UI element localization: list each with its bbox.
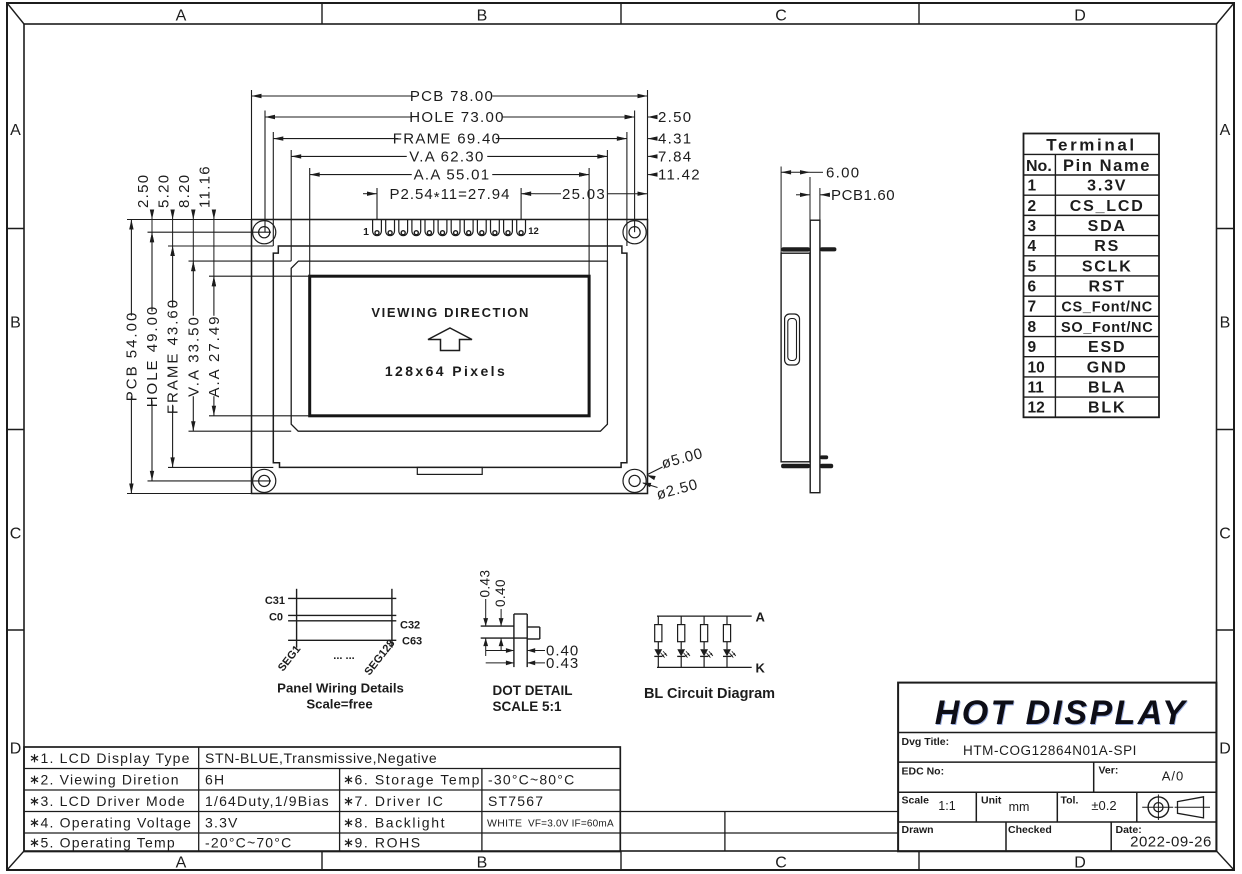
svg-text:B: B (10, 315, 21, 332)
svg-text:P2.54*11=27.94: P2.54*11=27.94 (390, 186, 511, 206)
svg-text:FRAME 43.60: FRAME 43.60 (165, 298, 182, 414)
svg-text:No.: No. (1026, 158, 1052, 175)
svg-text:Scale=free: Scale=free (306, 697, 372, 712)
svg-text:4: 4 (1028, 238, 1037, 255)
svg-text:7.84: 7.84 (658, 148, 692, 165)
svg-text:5.20: 5.20 (155, 174, 172, 208)
svg-text:RST: RST (1088, 279, 1125, 296)
svg-text:BL Circuit Diagram: BL Circuit Diagram (644, 686, 775, 702)
svg-text:-20°C~70°C: -20°C~70°C (205, 834, 292, 850)
svg-text:Terminal: Terminal (1046, 136, 1136, 155)
svg-text:K: K (756, 661, 766, 676)
svg-text:C: C (775, 855, 787, 872)
svg-text:VIEWING DIRECTION: VIEWING DIRECTION (371, 305, 530, 320)
svg-text:SCALE 5:1: SCALE 5:1 (493, 699, 563, 714)
svg-text:C: C (1219, 526, 1231, 543)
svg-text:A/0: A/0 (1162, 769, 1185, 784)
svg-text:C32: C32 (400, 620, 420, 632)
svg-text:HOLE 73.00: HOLE 73.00 (409, 109, 505, 126)
svg-text:CS_LCD: CS_LCD (1070, 198, 1145, 215)
svg-text:ST7567: ST7567 (488, 793, 544, 809)
svg-text:128x64 Pixels: 128x64 Pixels (385, 363, 507, 379)
svg-text:BLK: BLK (1088, 400, 1126, 417)
svg-text:PCB 78.00: PCB 78.00 (410, 88, 494, 105)
svg-text:V.A 33.50: V.A 33.50 (185, 315, 202, 397)
svg-text:D: D (1074, 855, 1086, 872)
svg-text:A: A (10, 122, 21, 139)
svg-text:1:1: 1:1 (938, 799, 955, 813)
svg-text:Ver:: Ver: (1099, 765, 1119, 777)
svg-text:B: B (477, 8, 488, 25)
svg-text:A: A (176, 8, 187, 25)
svg-text:C0: C0 (269, 612, 283, 624)
svg-text:Checked: Checked (1008, 824, 1052, 836)
svg-text:EDC No:: EDC No: (902, 766, 945, 778)
svg-text:PCB 54.00: PCB 54.00 (123, 311, 140, 402)
svg-text:8: 8 (1028, 319, 1037, 336)
svg-text:STN-BLUE,Transmissive,Negative: STN-BLUE,Transmissive,Negative (205, 750, 437, 766)
svg-text:9. ROHS: 9. ROHS (355, 834, 422, 850)
svg-text:1/64Duty,1/9Bias: 1/64Duty,1/9Bias (205, 793, 330, 809)
svg-text:3: 3 (1028, 218, 1037, 235)
svg-text:2. Viewing Diretion: 2. Viewing Diretion (41, 771, 180, 787)
svg-text:2022-09-26: 2022-09-26 (1130, 834, 1212, 851)
svg-text:ESD: ESD (1088, 339, 1126, 356)
svg-text:7: 7 (1028, 299, 1037, 316)
svg-text:SDA: SDA (1088, 218, 1127, 235)
svg-text:3.3V: 3.3V (205, 814, 239, 830)
svg-text:PCB1.60: PCB1.60 (831, 187, 895, 204)
svg-text:BLA: BLA (1088, 380, 1126, 397)
svg-text:A: A (176, 855, 187, 872)
svg-text:11: 11 (1028, 380, 1045, 397)
svg-text:C63: C63 (402, 636, 422, 648)
svg-text:C: C (10, 526, 22, 543)
svg-text:6H: 6H (205, 771, 225, 787)
svg-text:D: D (1074, 8, 1086, 25)
svg-text:7. Driver IC: 7. Driver IC (355, 793, 445, 809)
svg-text:A: A (756, 610, 766, 625)
svg-text:D: D (10, 741, 22, 758)
svg-text:2.50: 2.50 (658, 109, 692, 126)
svg-text:Scale: Scale (902, 795, 930, 807)
svg-text:4.31: 4.31 (658, 131, 692, 148)
svg-text:8.20: 8.20 (176, 174, 193, 208)
svg-text:±0.2: ±0.2 (1091, 798, 1116, 813)
svg-text:GND: GND (1087, 359, 1128, 376)
svg-text:1: 1 (363, 226, 369, 238)
svg-text:B: B (477, 855, 488, 872)
svg-text:Tol.: Tol. (1061, 795, 1079, 807)
svg-text:3. LCD Driver Mode: 3. LCD Driver Mode (41, 793, 186, 809)
svg-text:11.42: 11.42 (658, 167, 701, 184)
svg-text:Drawn: Drawn (902, 824, 934, 836)
svg-text:1. LCD Display Type: 1. LCD Display Type (41, 750, 191, 766)
svg-text:D: D (1219, 741, 1231, 758)
svg-text:Dvg Title:: Dvg Title: (902, 736, 950, 748)
svg-text:6: 6 (1028, 279, 1037, 296)
svg-text:C31: C31 (265, 595, 285, 607)
svg-text:B: B (1220, 315, 1231, 332)
svg-text:3.3V: 3.3V (1087, 178, 1127, 195)
svg-text:-30°C~80°C: -30°C~80°C (488, 771, 575, 787)
svg-text:A.A 27.49: A.A 27.49 (206, 314, 223, 397)
svg-text:2: 2 (1028, 198, 1037, 215)
svg-text:1: 1 (1028, 178, 1037, 195)
svg-text:2.50: 2.50 (135, 174, 152, 208)
svg-text:C: C (775, 8, 787, 25)
svg-text:HOLE 49.00: HOLE 49.00 (144, 305, 161, 408)
svg-text:... ...: ... ... (333, 650, 354, 662)
svg-text:0.43: 0.43 (546, 655, 579, 672)
svg-text:4. Operating Voltage: 4. Operating Voltage (41, 814, 193, 830)
svg-text:A.A 55.01: A.A 55.01 (414, 167, 491, 184)
svg-text:6.00: 6.00 (826, 164, 860, 181)
svg-text:12: 12 (1028, 400, 1045, 417)
svg-text:HTM-COG12864N01A-SPI: HTM-COG12864N01A-SPI (963, 743, 1137, 758)
svg-text:11.16: 11.16 (197, 165, 214, 208)
svg-text:9: 9 (1028, 339, 1037, 356)
svg-text:FRAME 69.40: FRAME 69.40 (393, 131, 502, 148)
svg-text:RS: RS (1094, 238, 1120, 255)
svg-text:5. Operating Temp: 5. Operating Temp (41, 834, 176, 850)
svg-text:Unit: Unit (981, 795, 1002, 807)
svg-text:5: 5 (1028, 258, 1037, 275)
svg-text:Panel Wiring Details: Panel Wiring Details (277, 681, 404, 696)
svg-text:8. Backlight: 8. Backlight (355, 814, 447, 830)
svg-text:25.03: 25.03 (562, 186, 606, 203)
svg-text:SO_Font/NC: SO_Font/NC (1061, 320, 1153, 336)
svg-text:Pin Name: Pin Name (1063, 157, 1151, 175)
svg-text:VF=3.0V IF=60mA: VF=3.0V IF=60mA (528, 819, 614, 830)
svg-text:0.43: 0.43 (478, 570, 493, 598)
svg-text:HOT DISPLAY: HOT DISPLAY (935, 694, 1188, 732)
svg-text:V.A 62.30: V.A 62.30 (409, 148, 484, 165)
svg-text:CS_Font/NC: CS_Font/NC (1061, 300, 1153, 316)
svg-text:0.40: 0.40 (493, 579, 508, 607)
svg-text:SCLK: SCLK (1082, 258, 1133, 275)
svg-text:6. Storage Temp: 6. Storage Temp (355, 771, 481, 787)
svg-text:DOT DETAIL: DOT DETAIL (493, 683, 573, 698)
svg-text:12: 12 (528, 226, 539, 237)
svg-text:10: 10 (1028, 359, 1045, 376)
svg-text:WHITE: WHITE (487, 818, 522, 830)
svg-text:mm: mm (1009, 800, 1030, 814)
svg-text:A: A (1220, 122, 1231, 139)
